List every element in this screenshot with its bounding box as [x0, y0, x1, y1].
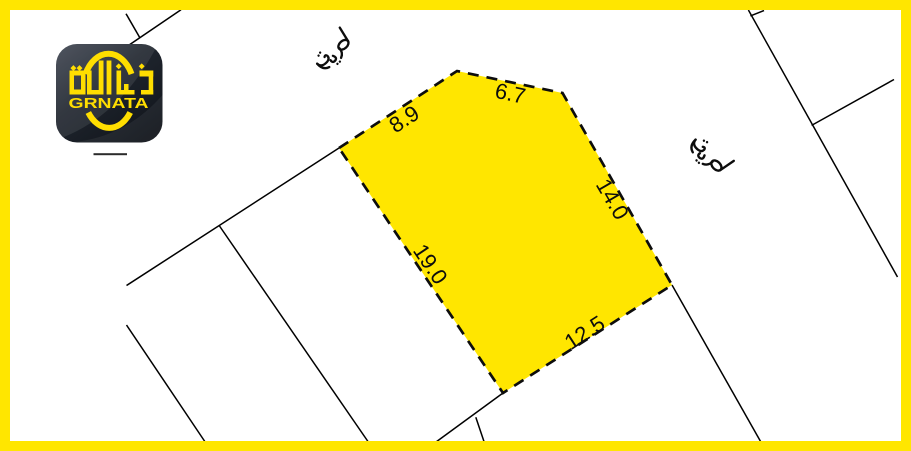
svg-text:GRNATA: GRNATA	[69, 96, 150, 112]
